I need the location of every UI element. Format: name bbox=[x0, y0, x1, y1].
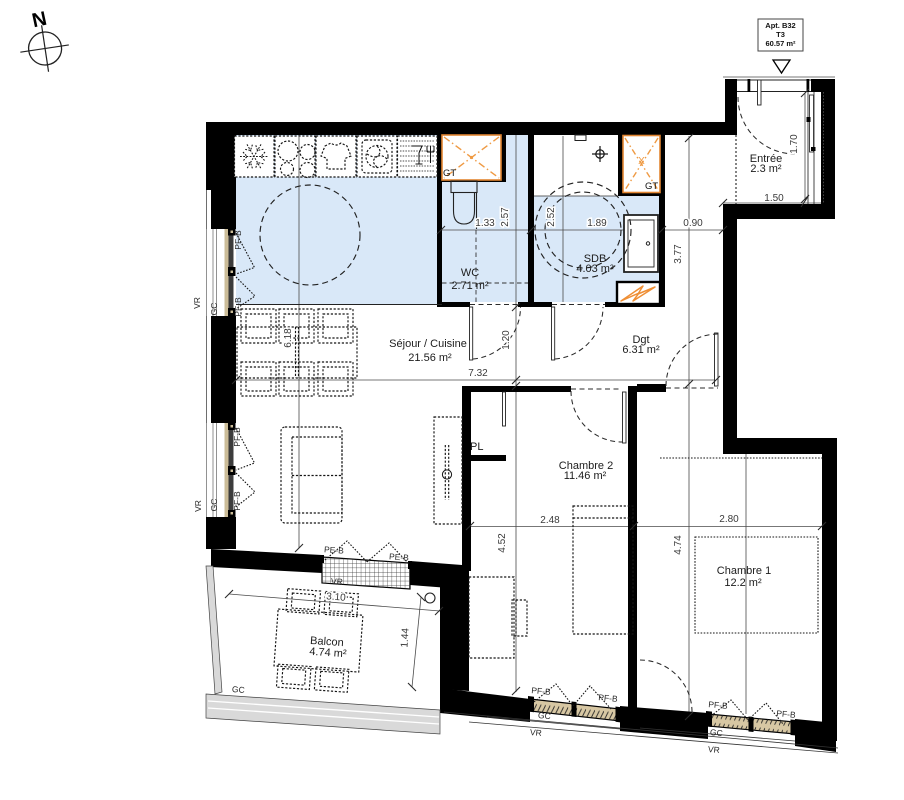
svg-text:PF-B: PF-B bbox=[776, 708, 796, 720]
svg-text:GC: GC bbox=[232, 684, 245, 695]
svg-text:VR: VR bbox=[193, 500, 203, 512]
svg-text:PF-B: PF-B bbox=[598, 692, 618, 704]
svg-text:PF-B: PF-B bbox=[232, 491, 242, 511]
svg-text:PF-B: PF-B bbox=[233, 230, 243, 250]
svg-text:6.18: 6.18 bbox=[283, 328, 294, 348]
svg-text:3.10: 3.10 bbox=[326, 591, 347, 604]
svg-text:PE-B: PE-B bbox=[324, 544, 345, 555]
svg-text:12.2 m²: 12.2 m² bbox=[724, 577, 762, 589]
svg-text:1.44: 1.44 bbox=[399, 627, 411, 648]
svg-text:4.74: 4.74 bbox=[673, 535, 684, 555]
svg-text:2.80: 2.80 bbox=[719, 514, 739, 525]
svg-text:PE-B: PE-B bbox=[389, 551, 410, 562]
svg-text:WC: WC bbox=[461, 267, 479, 279]
svg-text:4.03 m²: 4.03 m² bbox=[576, 263, 614, 275]
svg-text:VR: VR bbox=[530, 727, 543, 738]
svg-text:T3: T3 bbox=[776, 30, 785, 39]
svg-text:2.57: 2.57 bbox=[500, 207, 511, 227]
svg-text:PF-B: PF-B bbox=[232, 427, 242, 447]
svg-text:VR: VR bbox=[708, 744, 721, 755]
svg-text:1.33: 1.33 bbox=[475, 218, 495, 229]
svg-text:Chambre 1: Chambre 1 bbox=[717, 565, 771, 577]
svg-text:2.71 m²: 2.71 m² bbox=[451, 280, 489, 292]
svg-text:GT: GT bbox=[443, 168, 456, 179]
svg-text:60.57 m²: 60.57 m² bbox=[765, 39, 796, 48]
svg-text:2.48: 2.48 bbox=[540, 515, 560, 526]
svg-text:VR: VR bbox=[192, 297, 202, 309]
svg-text:GC: GC bbox=[209, 303, 219, 316]
svg-text:11.46 m²: 11.46 m² bbox=[564, 470, 607, 482]
svg-text:Séjour / Cuisine: Séjour / Cuisine bbox=[389, 338, 467, 350]
svg-text:GC: GC bbox=[710, 727, 724, 738]
svg-text:PF-B: PF-B bbox=[708, 699, 728, 711]
svg-text:7.32: 7.32 bbox=[468, 368, 488, 379]
svg-text:4.52: 4.52 bbox=[497, 533, 508, 553]
svg-text:1.50: 1.50 bbox=[764, 193, 784, 204]
svg-text:GC: GC bbox=[538, 710, 552, 721]
svg-text:2.3 m²: 2.3 m² bbox=[750, 163, 782, 175]
svg-text:1.20: 1.20 bbox=[501, 330, 512, 350]
svg-text:PF-B: PF-B bbox=[233, 297, 243, 317]
svg-text:1.89: 1.89 bbox=[587, 218, 607, 229]
svg-text:X: X bbox=[638, 156, 645, 167]
svg-text:GC: GC bbox=[209, 499, 219, 512]
svg-text:PF-B: PF-B bbox=[531, 685, 551, 697]
svg-text:3.77: 3.77 bbox=[673, 244, 684, 264]
svg-text:2.52: 2.52 bbox=[546, 207, 557, 227]
svg-text:0.90: 0.90 bbox=[683, 218, 703, 229]
svg-text:PL: PL bbox=[470, 441, 483, 453]
svg-text:Apt. B32: Apt. B32 bbox=[765, 21, 795, 30]
svg-text:1.70: 1.70 bbox=[789, 134, 800, 154]
svg-text:GT: GT bbox=[645, 181, 658, 192]
svg-text:6.31 m²: 6.31 m² bbox=[622, 344, 660, 356]
svg-text:VR: VR bbox=[331, 576, 343, 587]
svg-text:21.56 m²: 21.56 m² bbox=[408, 352, 452, 364]
